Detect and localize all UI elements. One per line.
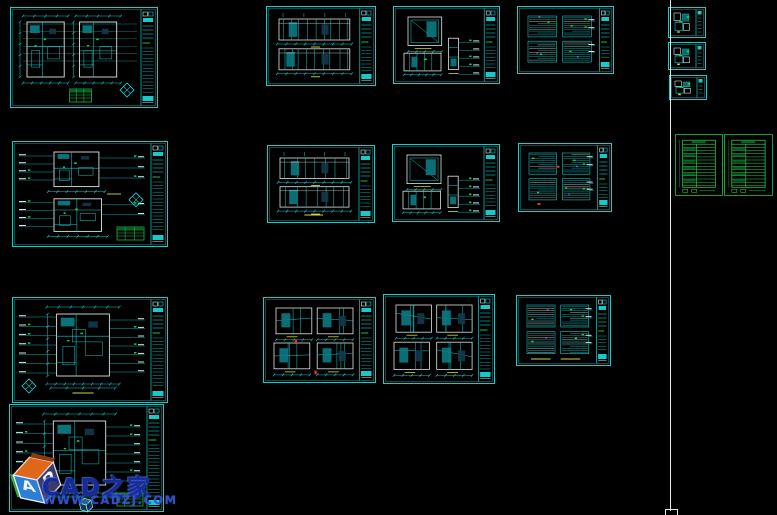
sheet-elevation-sheet-3[interactable] — [267, 145, 375, 223]
sheet-schedule-table-sheet-2[interactable] — [724, 134, 773, 196]
sheet-elevation-sheet-1[interactable] — [266, 6, 376, 86]
sheet-small-detail-sheet-3[interactable] — [669, 75, 707, 100]
sheet-schedule-table-sheet-1[interactable] — [675, 134, 723, 196]
sheet-small-detail-sheet-1[interactable] — [668, 7, 706, 38]
sheet-floor-plan-pair-sheet[interactable] — [10, 7, 158, 108]
sheet-small-detail-sheet-2[interactable] — [668, 42, 706, 70]
sheet-elevation-sheet-2[interactable] — [393, 6, 500, 84]
sheet-elevation-sheet-5[interactable] — [263, 297, 376, 383]
sheet-elevation-sheet-6[interactable] — [383, 294, 495, 384]
sheet-detail-sheet-2[interactable] — [518, 143, 612, 212]
sheet-single-floor-plan-sheet-1[interactable] — [12, 297, 168, 403]
divider-endpoint-marker[interactable] — [665, 509, 678, 515]
cad-model-space[interactable]: A D CAD之家 WWW.CADZJ.COM — [0, 0, 777, 515]
viewport-divider-line[interactable] — [670, 0, 671, 511]
sheet-detail-sheet-1[interactable] — [517, 6, 614, 74]
sheet-detail-sheet-3[interactable] — [516, 295, 611, 366]
sheet-floor-plan-stack-sheet[interactable] — [12, 141, 168, 247]
sheet-elevation-sheet-4[interactable] — [392, 144, 500, 222]
sheet-single-floor-plan-sheet-2[interactable] — [9, 404, 164, 512]
